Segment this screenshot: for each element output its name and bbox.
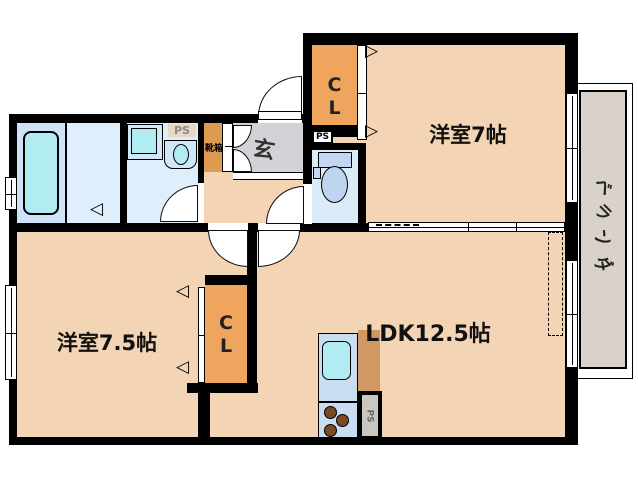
bathtub [23,131,59,215]
wall [120,123,127,223]
window [5,177,17,210]
room-western75-label: 洋室7.5帖 [27,327,187,357]
toilet-door-opening [303,184,312,224]
window [5,285,17,380]
wall [312,143,358,150]
washing-machine [127,124,163,160]
closet-mid-sliding-door [198,287,205,383]
wall [65,123,67,223]
wall [358,143,366,232]
kitchen-sink [322,341,351,380]
washing-machine-drum [131,128,157,154]
veranda-char: ラ [589,200,615,226]
entry-door-arc [258,76,302,116]
partition-tick [516,223,517,231]
slide-arrow-icon: ◁ [176,283,189,300]
slide-arrow-icon: ▷ [365,123,378,140]
wall [205,275,253,285]
stove-burner [324,406,337,419]
partition-dashed-line [376,224,419,226]
ps-box-washroom: PS [168,124,196,137]
wall [247,223,257,393]
entrance-step [233,172,303,180]
room-ldk-label: LDK12.5帖 [348,316,508,348]
wall [303,33,578,45]
ps-box-toilet: PS [312,130,333,144]
wash-basin [164,140,197,169]
partition-tick [468,223,469,231]
wall [9,114,17,445]
closet-mid-label-l: L [205,335,247,358]
toilet-bowl [321,166,348,203]
wall [187,383,258,393]
sliding-partition [368,222,565,232]
shoe-box-label: 靴箱 [203,141,225,154]
veranda-label: ベ ラ ン ダ [589,177,615,275]
veranda-char: ン [589,226,615,252]
stove-burner [336,414,349,427]
wall [9,437,578,445]
ps-kitchen-label: PS [365,409,375,422]
closet-mid-label-c: C [205,312,247,335]
slide-arrow-icon: ▷ [365,43,378,60]
washroom-door-opening [198,183,204,223]
shoe-box-leader-line [225,146,232,147]
toilet-handle [313,167,321,179]
entry-door-leaf [258,111,302,120]
stove-burner [324,424,337,437]
window [566,260,578,368]
floorplan: ▷ ▷ ◁ ◁ ◁ PS PS PS 洋室7帖 洋室7.5帖 LDK12.5帖 … [0,0,638,480]
window [566,93,578,203]
wash-basin-bowl [173,144,189,165]
closet-top-label-c: C [312,74,357,97]
room-western7-label: 洋室7帖 [388,119,548,149]
slide-arrow-icon: ◁ [176,359,189,376]
wall [198,393,210,445]
closet-mid-label: C L [205,312,247,358]
veranda-char: ベ [589,174,615,200]
closet-top-label-l: L [312,97,357,120]
partition-track [369,227,564,228]
closet-top-label: C L [312,74,357,120]
veranda-char: ダ [589,252,615,278]
entrance-label: 玄 [247,130,280,166]
ldk-dashed-outline [548,232,563,336]
ps-box-kitchen: PS [358,391,382,440]
slide-arrow-icon: ◁ [90,201,103,218]
